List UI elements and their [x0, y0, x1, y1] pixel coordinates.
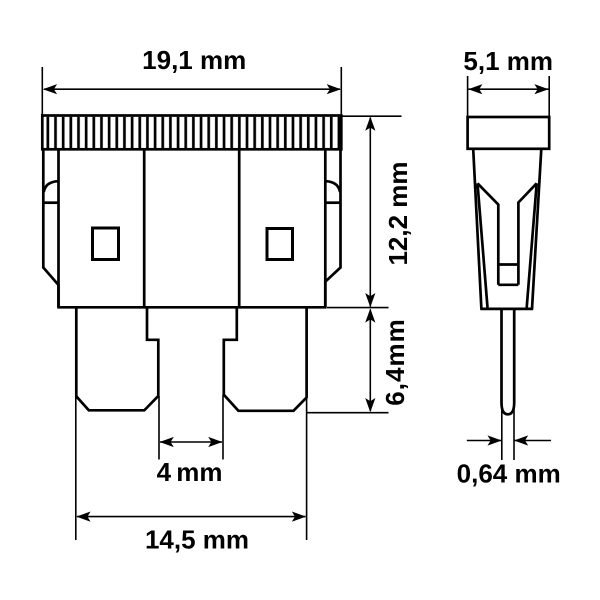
svg-text:6,4mm: 6,4mm	[380, 318, 410, 405]
svg-text:14,5 mm: 14,5 mm	[145, 525, 249, 555]
svg-text:4 mm: 4 mm	[157, 457, 223, 487]
svg-text:19,1 mm: 19,1 mm	[142, 45, 246, 75]
svg-text:12,2 mm: 12,2 mm	[383, 161, 413, 265]
svg-text:0,64 mm: 0,64 mm	[457, 459, 561, 489]
svg-text:5,1 mm: 5,1 mm	[463, 46, 553, 76]
